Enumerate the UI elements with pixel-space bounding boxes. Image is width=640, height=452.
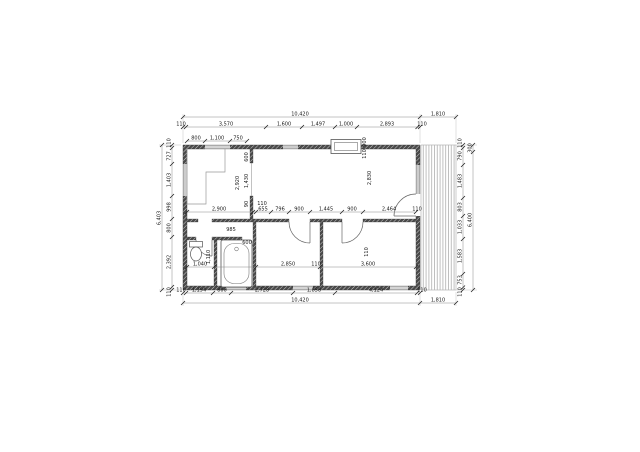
dim-label: 1,497 xyxy=(311,122,325,128)
door-swing-bedroom-1 xyxy=(289,222,310,243)
interior-wall-v1-top xyxy=(250,149,253,163)
dim-label: 1,483 xyxy=(458,174,464,188)
dim-label: 2,893 xyxy=(380,122,394,128)
dim-label: 110 xyxy=(364,247,370,257)
dim-label: 3,600 xyxy=(361,262,375,268)
window-bottom-3 xyxy=(390,286,408,291)
dim-label: 2,464 xyxy=(382,207,396,213)
dim-label: 110 xyxy=(176,122,186,128)
dim-label: 110 xyxy=(417,288,427,294)
dim-label: 900 xyxy=(347,207,357,213)
door-swing-terrace xyxy=(394,194,416,216)
dim-label: 6,400 xyxy=(468,213,474,227)
dim-label: 4,124 xyxy=(369,288,383,294)
dim-label: 1,810 xyxy=(431,112,445,118)
interior-wall-v3 xyxy=(253,222,256,286)
dim-label: 1,583 xyxy=(458,249,464,263)
door-swing-bedroom-2 xyxy=(342,222,363,243)
dim-label: 800 xyxy=(167,223,173,233)
dim-label: 1,040 xyxy=(193,262,207,268)
dim-label: 1,600 xyxy=(277,122,291,128)
dim-chain-bottom-overall: 10,4201,810 xyxy=(181,298,458,306)
dim-label: 6,403 xyxy=(157,211,163,225)
dim-label: 2,392 xyxy=(167,255,173,269)
window-right xyxy=(416,165,421,198)
outer-wall xyxy=(183,145,420,290)
dim-label: 1,445 xyxy=(319,207,333,213)
dim-chain-left-outer: 6,403 xyxy=(157,143,165,292)
dim-label: 2,900 xyxy=(212,207,226,213)
dim-chain-right-chain: 1107901,4838031,0331,583753110 xyxy=(458,138,466,297)
window-top-1 xyxy=(205,145,230,150)
dim-label: 753 xyxy=(458,275,464,285)
dim-label: 110 xyxy=(167,138,173,148)
dim-chain-right-outer: 3006,400 xyxy=(468,143,476,292)
dim-label: 1,810 xyxy=(431,298,445,304)
dim-label: 1,110 xyxy=(206,250,212,264)
dim-label: 110 xyxy=(362,149,368,159)
dim-label: 1,403 xyxy=(167,173,173,187)
terrace-deck xyxy=(421,145,456,290)
dim-label: 10,420 xyxy=(291,112,309,118)
dim-label: 2,728 xyxy=(255,288,269,294)
dim-label: 10,420 xyxy=(291,298,309,304)
dim-chain-inner-mid: 2,9006557969001,4459002,464110 xyxy=(185,207,422,215)
kitchen-counter xyxy=(187,149,225,204)
dim-label: 1,858 xyxy=(307,288,321,294)
dim-label: 110 xyxy=(176,288,186,294)
dim-label: 110 xyxy=(257,201,267,207)
dim-label: 800 xyxy=(217,288,227,294)
dim-label: 1,100 xyxy=(210,136,224,142)
interior-wall-h1-a xyxy=(187,219,198,222)
dim-chain-left-chain: 1107271,4039988002,392110 xyxy=(167,138,175,297)
windows xyxy=(183,140,421,291)
dim-label: 110 xyxy=(167,287,173,297)
interior-wall-h2-b xyxy=(212,237,242,240)
dim-label: 300 xyxy=(468,143,474,153)
toilet xyxy=(190,242,203,262)
dim-label: 998 xyxy=(167,202,173,212)
dim-label: 2,920 xyxy=(235,176,241,190)
dim-label: 1,033 xyxy=(458,220,464,234)
dim-label: 790 xyxy=(458,151,464,161)
dim-label: 1,194 xyxy=(192,288,206,294)
dim-label: 2,850 xyxy=(281,262,295,268)
interior-wall-v2 xyxy=(214,240,217,286)
dim-label: 110 xyxy=(458,287,464,297)
dim-label: 1,000 xyxy=(339,122,353,128)
floor-plan-sheet: 10,4201,8101103,5701,6001,4971,0002,8931… xyxy=(0,0,640,452)
dim-label: 727 xyxy=(167,151,173,161)
interior-wall-h1-b xyxy=(212,219,289,222)
dim-label: 600 xyxy=(242,240,252,246)
interior-wall-v1-bottom xyxy=(250,196,253,219)
dim-label: 800 xyxy=(191,136,201,142)
window-top-3-framed xyxy=(331,140,361,154)
dim-chain-top-chain: 1103,5701,6001,4971,0002,893110 xyxy=(176,122,427,130)
interior-wall-h2-a xyxy=(187,237,196,240)
dim-label: 3,570 xyxy=(219,122,233,128)
dim-label: 655 xyxy=(258,207,268,213)
dim-label: 900 xyxy=(294,207,304,213)
dim-label: 110 xyxy=(458,138,464,148)
dim-label: 750 xyxy=(233,136,243,142)
dim-label: 600 xyxy=(244,152,250,162)
interior-wall-v4 xyxy=(320,222,323,286)
dim-label: 2,830 xyxy=(367,171,373,185)
dim-label: 110 xyxy=(417,122,427,128)
dim-label: 900 xyxy=(362,137,368,147)
dim-label: 90 xyxy=(244,201,250,207)
dim-label: 796 xyxy=(275,207,285,213)
dim-label: 803 xyxy=(458,202,464,212)
dim-chain-top-overall: 10,4201,810 xyxy=(181,112,458,120)
bathtub xyxy=(221,240,252,287)
floor-plan-canvas: 10,4201,8101103,5701,6001,4971,0002,8931… xyxy=(0,0,640,452)
dim-chain-inner-low: 1,0402,8501103,600 xyxy=(185,262,418,270)
dim-chain-inner-top-left: 8001,100750 xyxy=(185,136,249,144)
window-top-2 xyxy=(283,145,298,150)
dim-label: 110 xyxy=(412,207,422,213)
dim-label: 1,430 xyxy=(244,174,250,188)
interior-wall-h1-d xyxy=(363,219,416,222)
dim-label: 110 xyxy=(311,262,321,268)
interior-wall-h1-c xyxy=(310,219,342,222)
dim-label: 985 xyxy=(226,227,236,233)
